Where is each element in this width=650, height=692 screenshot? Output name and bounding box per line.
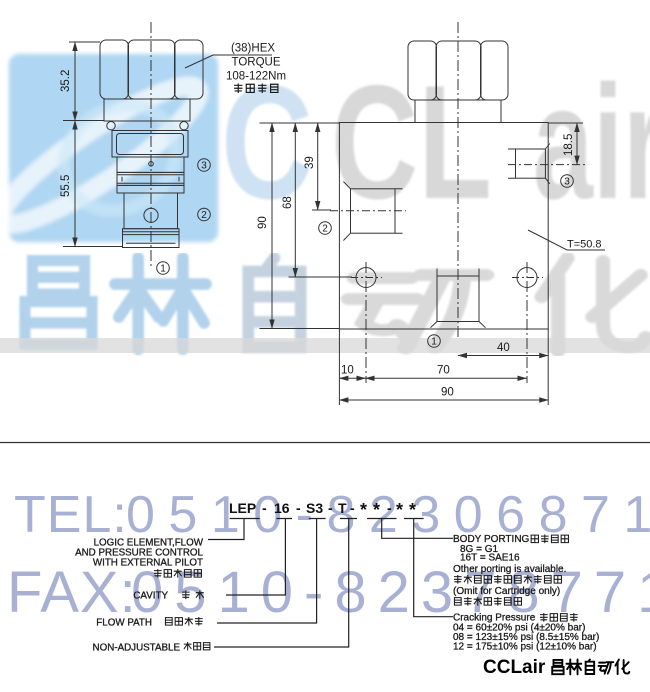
- svg-text:T: T: [338, 500, 347, 516]
- svg-text:3: 3: [564, 177, 570, 188]
- svg-text:3: 3: [201, 161, 207, 172]
- svg-text:16T = SAE16: 16T = SAE16: [460, 553, 520, 564]
- svg-text:2: 2: [322, 224, 328, 235]
- svg-text:TORQUE: TORQUE: [232, 57, 281, 69]
- svg-text:T=50.8: T=50.8: [567, 239, 602, 251]
- svg-text:90: 90: [441, 387, 454, 399]
- svg-text:16: 16: [274, 500, 290, 516]
- svg-text:(Omit for Cartridge only): (Omit for Cartridge only): [453, 586, 560, 597]
- svg-text:Other porting is available.: Other porting is available.: [453, 564, 566, 575]
- svg-text:12 = 175±10% psi (12±10% bar): 12 = 175±10% psi (12±10% bar): [453, 642, 597, 653]
- svg-text:air: air: [533, 52, 650, 233]
- svg-text:39: 39: [304, 156, 316, 169]
- svg-text:(38)HEX: (38)HEX: [231, 43, 275, 55]
- svg-text:40: 40: [497, 342, 510, 354]
- svg-text:-: -: [262, 500, 267, 516]
- svg-text:**: **: [360, 500, 386, 520]
- svg-text:-: -: [387, 500, 392, 516]
- svg-text:0510-82378771: 0510-82378771: [131, 560, 650, 625]
- svg-text:68: 68: [282, 196, 294, 209]
- svg-text:90: 90: [257, 216, 269, 229]
- svg-text:18.5: 18.5: [563, 134, 575, 156]
- svg-text:CAVITY: CAVITY: [133, 591, 168, 602]
- svg-text:-: -: [350, 500, 355, 516]
- svg-text:CL: CL: [331, 52, 492, 233]
- svg-text:-: -: [296, 500, 301, 516]
- svg-text:TEL:: TEL:: [14, 486, 128, 544]
- svg-text:10: 10: [341, 365, 354, 377]
- svg-text:1: 1: [160, 264, 166, 275]
- svg-text:CCLair: CCLair: [483, 657, 546, 678]
- svg-text:S3: S3: [306, 500, 323, 516]
- svg-text:FLOW PATH: FLOW PATH: [96, 617, 152, 628]
- svg-text:FAX:: FAX:: [7, 560, 137, 625]
- svg-text:WITH EXTERNAL PILOT: WITH EXTERNAL PILOT: [93, 558, 203, 569]
- svg-text:**: **: [396, 500, 422, 520]
- svg-text:NON-ADJUSTABLE: NON-ADJUSTABLE: [93, 642, 181, 653]
- svg-text:-: -: [328, 500, 333, 516]
- svg-text:35.2: 35.2: [60, 70, 72, 92]
- svg-text:108-122Nm: 108-122Nm: [226, 71, 286, 83]
- svg-text:70: 70: [437, 365, 450, 377]
- svg-text:1: 1: [431, 337, 437, 348]
- svg-text:2: 2: [201, 210, 207, 221]
- svg-text:55.5: 55.5: [60, 175, 72, 197]
- svg-text:LEP: LEP: [229, 500, 256, 516]
